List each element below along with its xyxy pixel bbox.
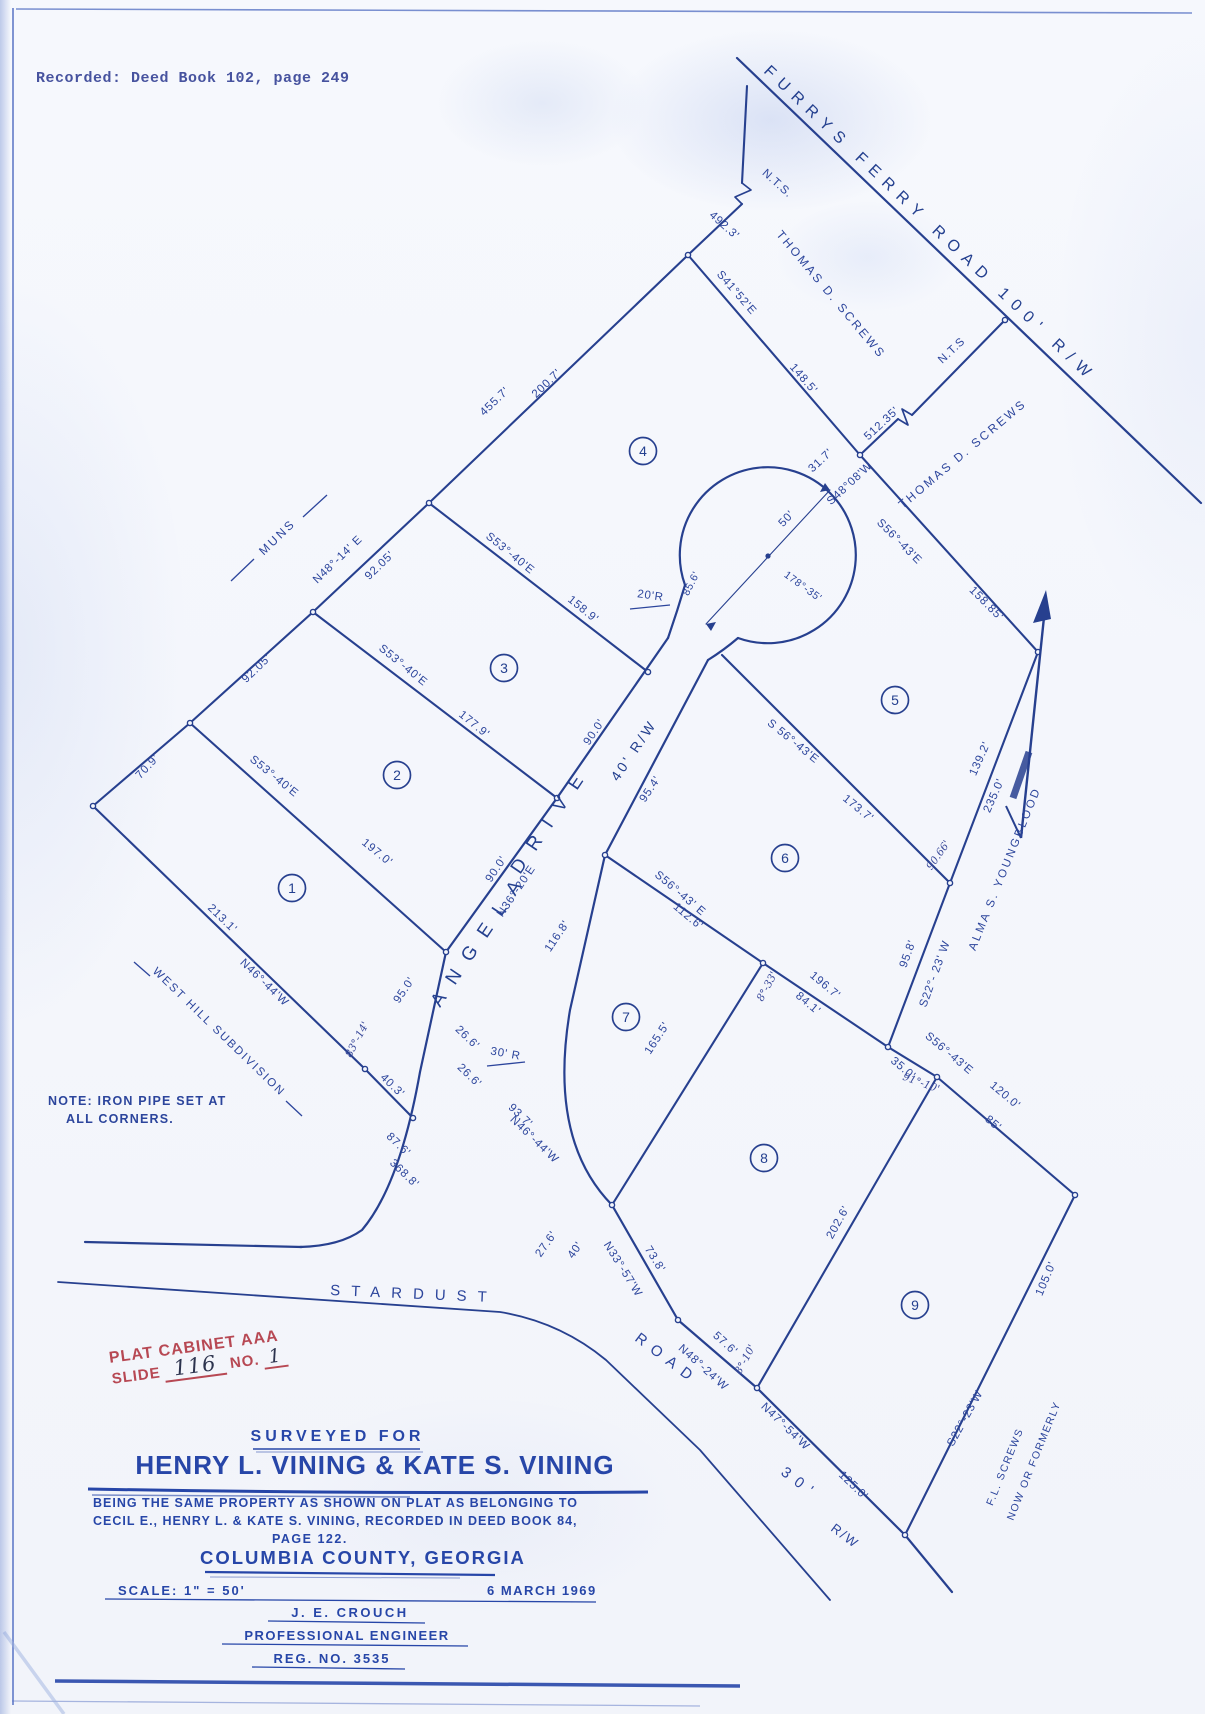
border-bottom (12, 1701, 700, 1706)
lot-number: 3 (500, 660, 508, 676)
stamp-no-value-handwritten: 1 (267, 1344, 283, 1368)
dim-label: 158.85' (967, 584, 1006, 623)
dim-label: 92.05' (240, 652, 274, 685)
underline-owners (88, 1489, 648, 1493)
dim-label: N46°-44'W (237, 957, 290, 1009)
muns-dash (231, 559, 254, 581)
recorded-deed-stamp: Recorded: Deed Book 102, page 249 (36, 70, 350, 87)
dim-label: 31.7' (806, 447, 835, 475)
dim-label: 235.0' (982, 777, 1008, 815)
dim-label: S53°-40'E (247, 754, 300, 800)
dim-label: 139.2' (968, 740, 994, 778)
corner-point (609, 1202, 614, 1207)
road-rw-angela: 40' R/W (607, 716, 660, 783)
boundary-lines (93, 86, 1075, 1535)
dim-label: S56°-43'E (874, 517, 924, 567)
stamp-no-label: NO. (229, 1351, 261, 1372)
dim-label: 57.6' (710, 1330, 739, 1358)
break-zigzag-2 (898, 409, 912, 425)
corner-point (410, 1115, 415, 1120)
underline-county (205, 1572, 495, 1575)
dim-label: 26.6' (455, 1062, 484, 1090)
dim-label: S22°- 23' W (918, 939, 953, 1009)
dim-label: 197.0' (359, 837, 394, 869)
dim-label: N48°-14' E (311, 534, 365, 587)
plat-scan-page: 1 2 3 4 5 6 7 8 9 FURRYS FERRY ROAD 100'… (0, 0, 1205, 1714)
title-description-1: BEING THE SAME PROPERTY AS SHOWN ON PLAT… (93, 1496, 578, 1510)
dim-label: 95.0' (392, 975, 418, 1005)
title-scale: SCALE: 1" = 50' (118, 1583, 246, 1598)
dim-label: 95.4' (638, 774, 664, 804)
furrys-ferry-road-edge (737, 58, 1201, 503)
border-top (16, 9, 1192, 13)
dim-label: 26.6' (453, 1024, 482, 1052)
corner-point (362, 1066, 367, 1071)
underline-engineer-name (268, 1621, 425, 1623)
underline-engineer-reg (252, 1667, 405, 1669)
dim-label: 92.05' (363, 549, 397, 582)
lot9-east-boundary (905, 1195, 1075, 1535)
lot-number: 4 (639, 443, 647, 459)
dim-label: 27.6' (533, 1229, 559, 1259)
lot4-ne-boundary (688, 255, 860, 455)
cul-de-sac-center-point (765, 553, 770, 558)
title-engineer-title: PROFESSIONAL ENGINEER (222, 1628, 472, 1643)
corner-point (1002, 317, 1007, 322)
dim-label: N47°-54'W (758, 1401, 811, 1453)
dim-label: 120.0' (987, 1080, 1022, 1112)
dim-label: 512.35' (862, 405, 902, 443)
dim-label: 455.7' (478, 385, 512, 418)
muns-dash (303, 495, 327, 517)
lot-number: 7 (622, 1009, 630, 1025)
lot7-lot6-east-line (763, 963, 888, 1047)
corner-point (947, 880, 952, 885)
dimension-labels: N.T.S. 492.3' S41°52'E 148.5' 31.7' S48°… (134, 167, 1059, 1502)
radius-20-underline (630, 605, 670, 609)
handwritten-note: 90.66' (924, 838, 953, 872)
corner-point (857, 452, 862, 457)
corner-point (443, 949, 448, 954)
dim-label: S22°-23'W (945, 1389, 986, 1449)
corner-point (602, 852, 607, 857)
title-description-3: PAGE 122. (272, 1532, 348, 1546)
lot-number: 1 (288, 880, 296, 896)
stamp-slide-label: SLIDE (111, 1364, 162, 1387)
title-county: COLUMBIA COUNTY, GEORGIA (200, 1547, 500, 1569)
title-date: 6 MARCH 1969 (487, 1583, 597, 1598)
title-surveyed-for: SURVEYED FOR (230, 1428, 445, 1446)
road-name-drive: DRIVE (507, 760, 596, 878)
stardust-north-edge (85, 1242, 302, 1247)
underline-scale-date (105, 1599, 596, 1602)
corner-point (760, 960, 765, 965)
corner-point (902, 1532, 907, 1537)
dim-label: 73.8' (642, 1244, 667, 1275)
dim-label: 87.6' (384, 1131, 413, 1159)
lot8-lot9-line (757, 1077, 937, 1388)
dim-label: 165.5' (643, 1020, 673, 1057)
dim-label: N.T.S. (760, 167, 795, 200)
lot5-lot6-line (722, 655, 950, 883)
dim-label: 85.6' (680, 570, 702, 598)
lot-number: 6 (781, 850, 789, 866)
corner-point (685, 252, 690, 257)
lot-number: 5 (891, 692, 899, 708)
title-owners: HENRY L. VINING & KATE S. VINING (85, 1450, 665, 1481)
corner-point (310, 609, 315, 614)
underline-county-2 (210, 1577, 460, 1578)
corner-point (90, 803, 95, 808)
dim-label: 178°-35' (782, 569, 824, 604)
north-arrow-head (1033, 590, 1051, 623)
west-hill-dash (286, 1101, 302, 1116)
dim-label: 50' (776, 509, 797, 530)
dim-label: 200.7' (530, 367, 564, 400)
dim-label: 202.6' (824, 1204, 852, 1241)
dim-label: 492.3' (707, 209, 742, 242)
adjoiner-muns: MUNS (256, 516, 298, 558)
dim-label: 20'R (636, 588, 664, 604)
corner-point (675, 1317, 680, 1322)
dim-label: S53°-40'E (483, 531, 536, 577)
lot1-sw-boundary (93, 806, 365, 1069)
break-zigzag-1 (735, 183, 751, 204)
adjoiner-thomas-screws-2: THOMAS D. SCREWS (896, 396, 1030, 511)
dim-label: 125.0' (836, 1469, 870, 1502)
note-line-2: ALL CORNERS. (66, 1112, 174, 1126)
corner-point (934, 1074, 939, 1079)
lot2-lot3-line (313, 612, 557, 798)
dim-label: 105.0' (1034, 1260, 1059, 1298)
lot5-north-boundary (860, 455, 1038, 652)
road-name-furrys-ferry: FURRYS FERRY ROAD 100' R/W (760, 63, 1100, 386)
handwritten-note: 8°-33' (755, 970, 780, 1004)
dim-label: 116.8' (543, 918, 572, 954)
corner-point (885, 1044, 890, 1049)
adjoiner-thomas-screws-1: THOMAS D. SCREWS (773, 228, 888, 362)
corner-point (426, 500, 431, 505)
road-rw-30: 30' (778, 1464, 823, 1504)
lot7-lot8-line (612, 963, 763, 1205)
title-engineer-name: J. E. CROUCH (270, 1605, 430, 1620)
nts-break-line-1a (742, 86, 747, 183)
dim-label: S48°08'W (825, 460, 875, 508)
title-block-bottom-bar (55, 1681, 740, 1686)
corner-point (754, 1385, 759, 1390)
corner-point (187, 720, 192, 725)
lot-number: 9 (911, 1297, 919, 1313)
dim-label: 148.5' (787, 362, 820, 397)
title-description-2: CECIL E., HENRY L. & KATE S. VINING, REC… (93, 1514, 578, 1528)
radius-30-underline (487, 1062, 525, 1066)
lot-number: 8 (760, 1150, 768, 1166)
title-engineer-reg: REG. NO. 3535 (252, 1651, 412, 1666)
west-hill-dash (134, 962, 150, 976)
corner-point (1072, 1192, 1077, 1197)
note-line-1: NOTE: IRON PIPE SET AT (48, 1094, 227, 1108)
dim-label: S56°-43'E (923, 1030, 976, 1077)
lot-number: 2 (393, 767, 401, 783)
corner-point (645, 669, 650, 674)
nts-break-line-2b (912, 320, 1005, 415)
dim-label: 30' R (489, 1045, 521, 1062)
dim-label: 173.7' (840, 793, 875, 825)
dim-label: 95.8' (898, 938, 919, 969)
road-rw-rw: R/W (828, 1520, 862, 1551)
dim-label: 40' (566, 1240, 586, 1261)
underline-engineer-title (222, 1644, 468, 1646)
lot3-lot4-line (429, 503, 648, 672)
stamp-slide-value-handwritten: 116 (172, 1351, 218, 1380)
handwritten-note: 83°-14' (343, 1020, 372, 1060)
